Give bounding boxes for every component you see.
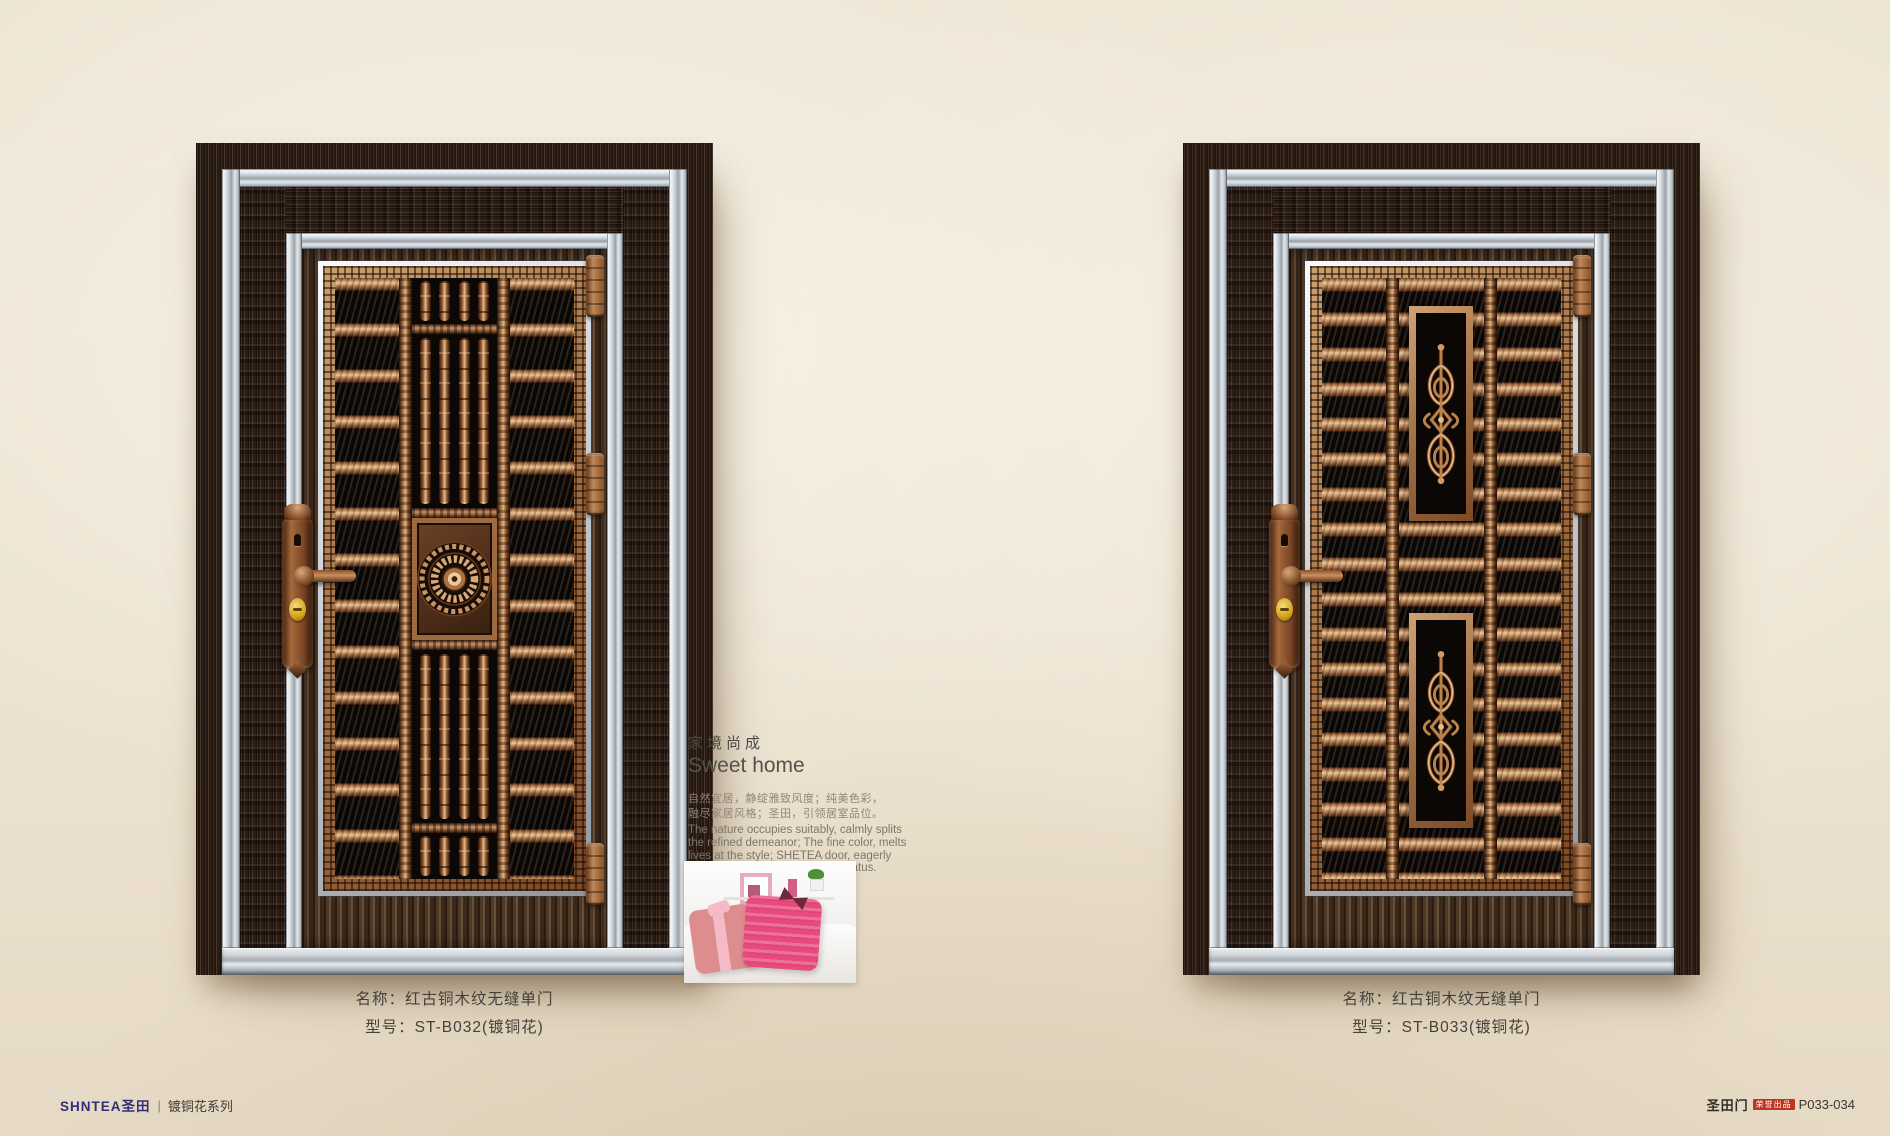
door-caption-st-b033: 名称：红古铜木纹无缝单门 型号：ST-B033(镀铜花) xyxy=(1183,986,1700,1042)
baluster xyxy=(420,836,431,876)
copper-rail xyxy=(412,823,497,833)
carved-wood-frame xyxy=(1610,187,1656,948)
baluster xyxy=(420,338,431,504)
baluster xyxy=(459,654,470,820)
scrollwork-icon xyxy=(1419,317,1463,511)
catalog-page: 名称：红古铜木纹无缝单门 型号：ST-B032(镀铜花) 名称：红古铜木纹无缝单… xyxy=(0,0,1890,1136)
footer-right: 圣田门 荣誉出品 P033-034 xyxy=(1707,1095,1855,1114)
photo-plant-pot xyxy=(810,879,824,891)
rosette-medallion xyxy=(412,518,497,640)
baluster-row xyxy=(412,650,497,824)
photo-plant xyxy=(808,869,824,879)
door-hinge xyxy=(586,843,604,905)
steel-molding xyxy=(222,169,240,948)
keyhole-icon xyxy=(1281,534,1288,546)
slat-column xyxy=(510,278,574,879)
footer-left: SHNTEA圣田 | 镀铜花系列 xyxy=(60,1095,233,1115)
panel-interior xyxy=(1322,278,1561,879)
scrollwork-icon xyxy=(1419,624,1463,818)
door-hinge xyxy=(586,453,604,515)
door-hinge xyxy=(1573,843,1591,905)
door-name-caption: 名称：红古铜木纹无缝单门 xyxy=(1183,986,1700,1014)
door-handle xyxy=(282,518,313,668)
intro-body-cn-line: 自然宜居，静绽雅致风度；纯美色彩， xyxy=(688,792,930,807)
scroll-medallion xyxy=(1409,306,1473,521)
steel-molding xyxy=(1209,169,1227,948)
carved-wood-frame xyxy=(240,187,669,233)
intro-body-en-line: The nature occupies suitably, calmly spl… xyxy=(688,824,930,837)
steel-molding xyxy=(1656,169,1674,948)
lock-cylinder xyxy=(1276,598,1293,621)
baluster xyxy=(420,281,431,321)
carved-wood-frame xyxy=(1227,187,1656,233)
lifestyle-photo xyxy=(684,861,856,983)
steel-molding-inner xyxy=(286,233,623,249)
carved-wood-frame xyxy=(1227,187,1273,948)
center-column xyxy=(412,278,497,879)
baluster xyxy=(439,281,450,321)
brand-logo: SHNTEA圣田 xyxy=(60,1095,151,1115)
baluster xyxy=(478,836,489,876)
intro-body-cn-line: 融尽家居风格；圣田，引领居室品位。 xyxy=(688,807,930,822)
steel-molding-inner xyxy=(1273,233,1610,249)
page-number: P033-034 xyxy=(1799,1097,1855,1112)
door-model-caption: 型号：ST-B032(镀铜花) xyxy=(196,1014,713,1042)
door-handle xyxy=(1269,518,1300,668)
intro-title-cn: 家境尚成 xyxy=(688,732,930,753)
baluster xyxy=(459,836,470,876)
baluster xyxy=(459,338,470,504)
intro-body-cn: 自然宜居，静绽雅致风度；纯美色彩， 融尽家居风格；圣田，引领居室品位。 xyxy=(688,792,930,822)
keyhole-icon xyxy=(294,534,301,546)
slat-column xyxy=(1497,278,1561,879)
copper-rail xyxy=(412,324,497,334)
carved-wood-frame xyxy=(240,187,286,948)
door-hinge xyxy=(1573,255,1591,317)
intro-title-en: Sweet home xyxy=(688,754,930,778)
door-hinge xyxy=(586,255,604,317)
intro-body-en-line: the refined demeanor; The fine color, me… xyxy=(688,837,930,850)
center-column xyxy=(1399,278,1484,879)
baluster xyxy=(478,338,489,504)
decor-panel xyxy=(318,261,591,896)
panel-interior xyxy=(335,278,574,879)
door-threshold xyxy=(1209,948,1674,975)
scroll-medallion xyxy=(1409,613,1473,828)
baluster-row xyxy=(412,334,497,508)
door-name-caption: 名称：红古铜木纹无缝单门 xyxy=(196,986,713,1014)
brand-name: 圣田门 xyxy=(1707,1095,1749,1114)
baluster xyxy=(439,654,450,820)
short-baluster-row xyxy=(412,278,497,324)
door-hinge xyxy=(1573,453,1591,515)
series-label: 镀铜花系列 xyxy=(168,1096,233,1115)
door-leaf xyxy=(1289,249,1594,948)
door-threshold xyxy=(222,948,687,975)
copper-rail xyxy=(1484,278,1497,879)
door-caption-st-b032: 名称：红古铜木纹无缝单门 型号：ST-B032(镀铜花) xyxy=(196,986,713,1042)
baluster xyxy=(459,281,470,321)
door-leaf xyxy=(302,249,607,948)
carved-wood-frame xyxy=(623,187,669,948)
handle-lever xyxy=(1285,570,1343,582)
steel-molding-inner xyxy=(1594,233,1610,948)
steel-molding-inner xyxy=(607,233,623,948)
baluster xyxy=(478,281,489,321)
door-model-caption: 型号：ST-B033(镀铜花) xyxy=(1183,1014,1700,1042)
intro-block: 家境尚成 Sweet home 自然宜居，静绽雅致风度；纯美色彩， 融尽家居风格… xyxy=(688,732,930,875)
copper-rail xyxy=(399,278,412,879)
copper-rail xyxy=(412,508,497,518)
door-unit-st-b032 xyxy=(196,143,713,975)
footer-separator: | xyxy=(158,1098,161,1113)
copper-rail xyxy=(1386,278,1399,879)
copper-rail xyxy=(412,640,497,650)
baluster xyxy=(439,836,450,876)
rosette-flower-icon xyxy=(417,524,492,634)
handle-lever xyxy=(298,570,356,582)
baluster xyxy=(478,654,489,820)
copper-rail xyxy=(497,278,510,879)
steel-molding xyxy=(222,169,687,187)
steel-molding xyxy=(669,169,687,948)
steel-molding xyxy=(1209,169,1674,187)
quality-badge: 荣誉出品 xyxy=(1753,1099,1795,1110)
photo-pillow-pink xyxy=(742,894,823,971)
baluster xyxy=(420,654,431,820)
lock-cylinder xyxy=(289,598,306,621)
door-unit-st-b033 xyxy=(1183,143,1700,975)
decor-panel xyxy=(1305,261,1578,896)
baluster xyxy=(439,338,450,504)
short-baluster-row xyxy=(412,833,497,879)
